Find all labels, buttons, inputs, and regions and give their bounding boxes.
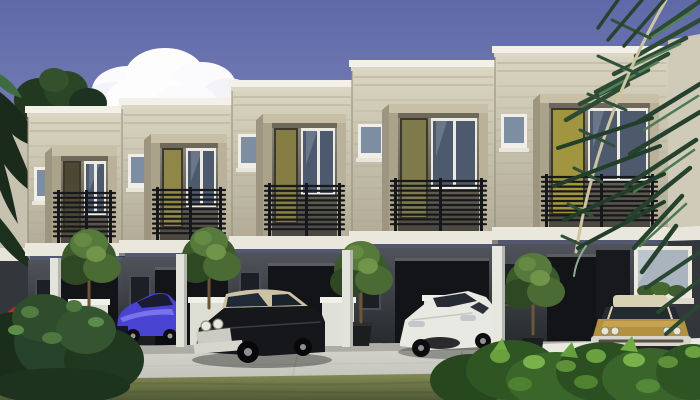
right-bush-leaf	[508, 377, 532, 391]
car-hub	[418, 345, 424, 351]
townhouse-unit-4-side-window-sill	[356, 158, 386, 162]
townhouse-unit-4-balcony-frame-top	[389, 104, 488, 113]
townhouse-unit-3-railing-post	[268, 183, 271, 236]
topiary-tree-3-foliage-highlight	[358, 258, 378, 274]
car-headlight	[213, 319, 223, 329]
townhouse-unit-3-railing-post	[338, 183, 341, 236]
townhouse-unit-5-side-window-glass	[504, 117, 524, 143]
townhouse-unit-5-window-mullion	[617, 110, 620, 180]
townhouse-unit-4-side-window-glass	[361, 127, 381, 153]
townhouse-unit-3-fascia	[229, 236, 355, 249]
townhouse-unit-4-railing-post	[394, 178, 397, 231]
townhouse-unit-5-balcony-side-face	[533, 94, 540, 227]
townhouse-unit-1-balcony-side-face	[45, 147, 52, 243]
topiary-tree-4-foliage-highlight	[530, 270, 550, 286]
right-bush-leaf	[586, 349, 606, 363]
townhouse-unit-5-side-window-sill	[499, 148, 529, 152]
car-headlight	[408, 321, 425, 327]
topiary-tree-2-foliage-highlight	[194, 231, 212, 245]
townhouse-unit-1-corner-line	[27, 117, 29, 243]
left-bush-leaf	[66, 300, 82, 312]
right-bush-leaf	[574, 375, 598, 389]
townhouse-unit-2-railing-post	[189, 187, 192, 240]
townhouse-unit-3-balcony-frame-top	[263, 114, 346, 123]
right-bush-leaf	[556, 360, 576, 372]
car-hub	[168, 334, 173, 339]
townhouse-unit-3-balcony-shadow	[272, 123, 337, 128]
townhouse-unit-4-corner-line	[351, 71, 353, 231]
townhouse-unit-2-balcony-shadow	[160, 143, 218, 148]
car-hub	[300, 344, 306, 350]
topiary-tree-1-foliage-highlight	[74, 233, 92, 247]
car-headlight	[201, 321, 211, 331]
townhouse-unit-2-balcony-frame-top	[151, 134, 227, 143]
left-bush-leaf	[8, 325, 24, 335]
townhouse-unit-2-window-mullion	[200, 150, 203, 205]
right-bush-leaf	[636, 379, 660, 393]
left-bush	[56, 306, 116, 354]
topiary-tree-1-foliage-highlight	[86, 246, 106, 262]
townhouse-unit-3-balcony-door	[276, 130, 296, 222]
townhouse-unit-2-railing-post	[156, 187, 159, 240]
right-side-wall	[668, 34, 700, 230]
townhouse-unit-2-balcony-side-face	[144, 134, 151, 240]
townhouse-unit-4-carport-soffit	[395, 258, 489, 261]
townhouse-unit-3-window-mullion	[317, 130, 320, 194]
townhouse-unit-4-balcony-side-face	[382, 104, 389, 231]
townhouse-unit-5-corner-line	[494, 57, 496, 227]
car-headlight	[601, 327, 609, 335]
townhouse-unit-4-balcony-shadow	[398, 113, 479, 118]
townhouse-unit-5-balcony-door	[553, 110, 583, 213]
car-headlight	[611, 327, 619, 335]
left-bush-leaf	[21, 306, 39, 318]
townhouse-unit-4-balcony-door	[402, 120, 426, 217]
car-roof	[613, 295, 667, 308]
townhouse-unit-4-railing-post	[480, 178, 483, 231]
car-headlight	[460, 315, 476, 321]
townhouse-unit-4-window-mullion	[453, 120, 456, 187]
right-bush-leaf	[490, 349, 510, 363]
townhouse-unit-3-balcony-side-face	[256, 114, 263, 236]
carport-pillar-shade	[184, 254, 187, 347]
townhouse-unit-4-railing-post	[439, 178, 442, 231]
right-bush-leaf	[523, 355, 545, 369]
townhouse-unit-1-balcony-shadow	[61, 156, 108, 161]
scene-canvas	[0, 0, 700, 400]
townhouse-unit-4-roof-cap-step	[351, 67, 496, 71]
townhouse-unit-1-balcony-frame-top	[52, 147, 117, 156]
townhouse-unit-5-carport-soffit	[547, 254, 599, 257]
car-hood-highlight	[602, 321, 681, 327]
tree-topleft	[39, 68, 69, 92]
townhouse-unit-3-roof-cap	[229, 80, 355, 87]
townhouse-unit-3-corner-line	[231, 91, 233, 236]
architectural-rendering: 3D rendering of a row of modern two-stor…	[0, 0, 700, 400]
townhouse-unit-1-railing-post	[57, 190, 60, 243]
townhouse-unit-4-roof-cap	[349, 60, 498, 67]
townhouse-unit-4-fascia	[349, 231, 498, 244]
townhouse-unit-1-railing-post	[109, 190, 112, 243]
townhouse-unit-3-roof-cap-step	[231, 87, 353, 91]
left-bush-leaf	[88, 317, 104, 327]
townhouse-unit-1-roof-cap-step	[27, 113, 123, 117]
topiary-tree-2-foliage-highlight	[206, 244, 226, 260]
left-bush-leaf	[42, 332, 62, 344]
townhouse-unit-3-fascia-shadow	[229, 249, 355, 253]
topiary-tree-4-foliage-highlight	[518, 257, 536, 271]
townhouse-unit-2-roof-cap	[119, 98, 235, 105]
right-bush-leaf	[623, 353, 645, 367]
carport-pillar-shade	[350, 250, 353, 347]
car-hub	[244, 348, 252, 356]
townhouse-unit-1-roof-cap	[25, 106, 125, 113]
carport-pillar-shade	[502, 246, 505, 347]
townhouse-unit-1-balcony-door	[65, 163, 79, 229]
right-bush-leaf	[658, 356, 678, 368]
townhouse-unit-5-railing-post	[545, 174, 548, 227]
townhouse-unit-2-corner-line	[121, 109, 123, 240]
townhouse-unit-5-balcony-shadow	[549, 103, 650, 108]
car-hub	[480, 338, 486, 344]
townhouse-unit-1-window-mullion	[94, 163, 97, 213]
townhouse-unit-2-roof-cap-step	[121, 105, 233, 109]
townhouse-unit-3-railing-post	[305, 183, 308, 236]
